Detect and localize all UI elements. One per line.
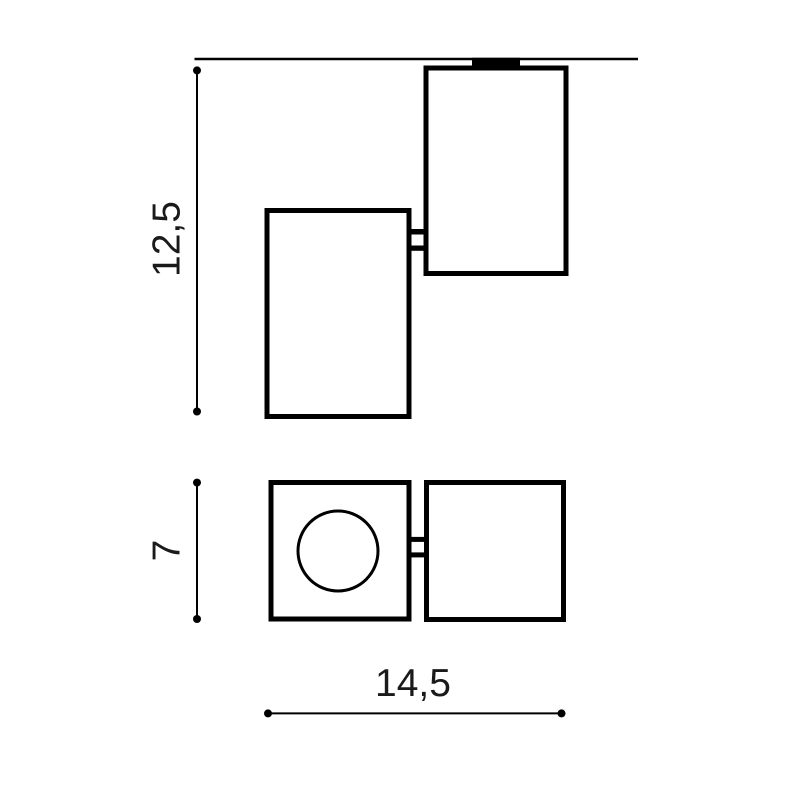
svg-text:7: 7 bbox=[146, 540, 189, 562]
svg-text:12,5: 12,5 bbox=[146, 201, 189, 277]
svg-text:14,5: 14,5 bbox=[375, 662, 451, 705]
